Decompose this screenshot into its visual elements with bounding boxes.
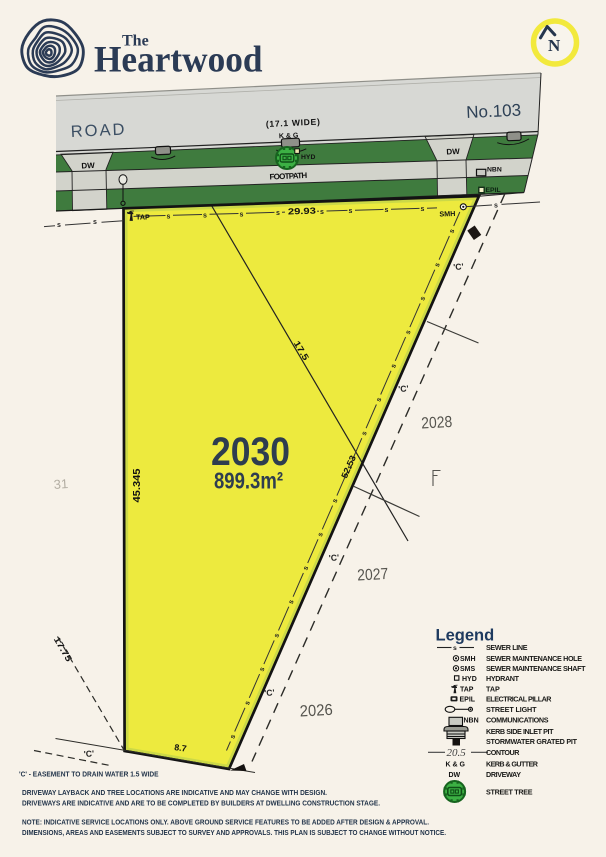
svg-text:EPIL: EPIL: [460, 697, 476, 704]
svg-text:'C': 'C': [264, 687, 275, 698]
svg-text:s: s: [240, 211, 244, 218]
svg-text:SMH: SMH: [439, 209, 455, 219]
svg-text:SMS: SMS: [460, 666, 476, 673]
svg-text:HYDRANT: HYDRANT: [486, 674, 520, 683]
svg-text:45.345: 45.345: [132, 468, 143, 502]
svg-text:K & G: K & G: [279, 132, 299, 140]
svg-text:K & G: K & G: [446, 761, 466, 768]
svg-text:ELECTRICAL PILLAR: ELECTRICAL PILLAR: [486, 695, 552, 704]
svg-text:DRIVEWAY LAYBACK AND TREE LOCA: DRIVEWAY LAYBACK AND TREE LOCATIONS ARE …: [22, 790, 327, 797]
svg-text:CONTOUR: CONTOUR: [486, 748, 520, 757]
svg-text:SEWER MAINTENANCE SHAFT: SEWER MAINTENANCE SHAFT: [486, 664, 586, 673]
svg-text:s: s: [494, 203, 498, 210]
svg-text:8.7: 8.7: [174, 742, 188, 754]
svg-text:SMH: SMH: [460, 656, 476, 663]
svg-text:31: 31: [53, 476, 68, 492]
svg-text:HYD: HYD: [462, 676, 477, 683]
svg-text:2026: 2026: [299, 702, 333, 721]
svg-text:No.103: No.103: [466, 101, 522, 122]
svg-text:KERB SIDE INLET PIT: KERB SIDE INLET PIT: [486, 727, 554, 736]
svg-text:s: s: [276, 210, 280, 217]
svg-text:DRIVEWAY: DRIVEWAY: [486, 770, 521, 779]
svg-text:DW: DW: [446, 147, 460, 157]
svg-text:STREET LIGHT: STREET LIGHT: [486, 705, 537, 714]
svg-text:TAP: TAP: [136, 212, 150, 221]
svg-text:N: N: [548, 36, 561, 55]
svg-text:Legend: Legend: [436, 627, 495, 645]
svg-text:899.3m²: 899.3m²: [214, 468, 283, 494]
svg-text:COMMUNICATIONS: COMMUNICATIONS: [486, 716, 549, 725]
svg-text:s: s: [203, 212, 207, 219]
svg-text:s: s: [349, 208, 353, 215]
svg-text:s: s: [57, 222, 61, 229]
svg-text:s: s: [385, 207, 389, 214]
svg-text:NOTE: INDICATIVE SERVICE LOCAT: NOTE: INDICATIVE SERVICE LOCATIONS ONLY.…: [22, 820, 429, 827]
svg-text:DW: DW: [449, 772, 461, 779]
svg-text:s: s: [320, 209, 324, 216]
svg-text:STORMWATER GRATED PIT: STORMWATER GRATED PIT: [486, 737, 578, 746]
svg-text:Heartwood: Heartwood: [94, 39, 263, 80]
svg-text:NBN: NBN: [464, 718, 479, 725]
svg-text:ROAD: ROAD: [70, 120, 126, 141]
svg-text:DRIVEWAYS ARE INDICATIVE AND A: DRIVEWAYS ARE INDICATIVE AND ARE TO BE C…: [22, 801, 380, 808]
svg-text:TAP: TAP: [486, 685, 500, 694]
svg-text:2028: 2028: [421, 414, 453, 433]
svg-text:'C': 'C': [398, 383, 409, 394]
svg-text:s: s: [453, 645, 457, 652]
svg-text:FOOTPATH: FOOTPATH: [269, 171, 308, 182]
svg-text:29.93: 29.93: [288, 206, 316, 217]
svg-text:20.5: 20.5: [447, 747, 467, 759]
svg-text:'C': 'C': [83, 748, 94, 759]
svg-text:'C': 'C': [453, 261, 464, 272]
svg-text:EPIL: EPIL: [486, 187, 501, 194]
svg-text:SEWER MAINTENANCE HOLE: SEWER MAINTENANCE HOLE: [486, 654, 582, 663]
svg-text:DIMENSIONS, AREAS AND EASEMENT: DIMENSIONS, AREAS AND EASEMENTS SUBJECT …: [22, 830, 446, 837]
svg-text:SEWER LINE: SEWER LINE: [486, 643, 528, 652]
svg-text:2027: 2027: [357, 566, 389, 585]
svg-text:s: s: [167, 213, 171, 220]
svg-text:s: s: [93, 219, 97, 226]
svg-text:DW: DW: [81, 161, 95, 171]
svg-text:TAP: TAP: [460, 687, 474, 694]
svg-text:NBN: NBN: [487, 167, 502, 174]
svg-text:s: s: [421, 206, 425, 213]
svg-text:'C': 'C': [328, 552, 339, 563]
svg-text:'C' - EASEMENT TO DRAIN WATER: 'C' - EASEMENT TO DRAIN WATER 1.5 WIDE: [19, 772, 159, 779]
svg-text:STREET TREE: STREET TREE: [486, 788, 533, 797]
svg-text:HYD: HYD: [301, 154, 315, 161]
svg-text:KERB & GUTTER: KERB & GUTTER: [486, 759, 539, 768]
